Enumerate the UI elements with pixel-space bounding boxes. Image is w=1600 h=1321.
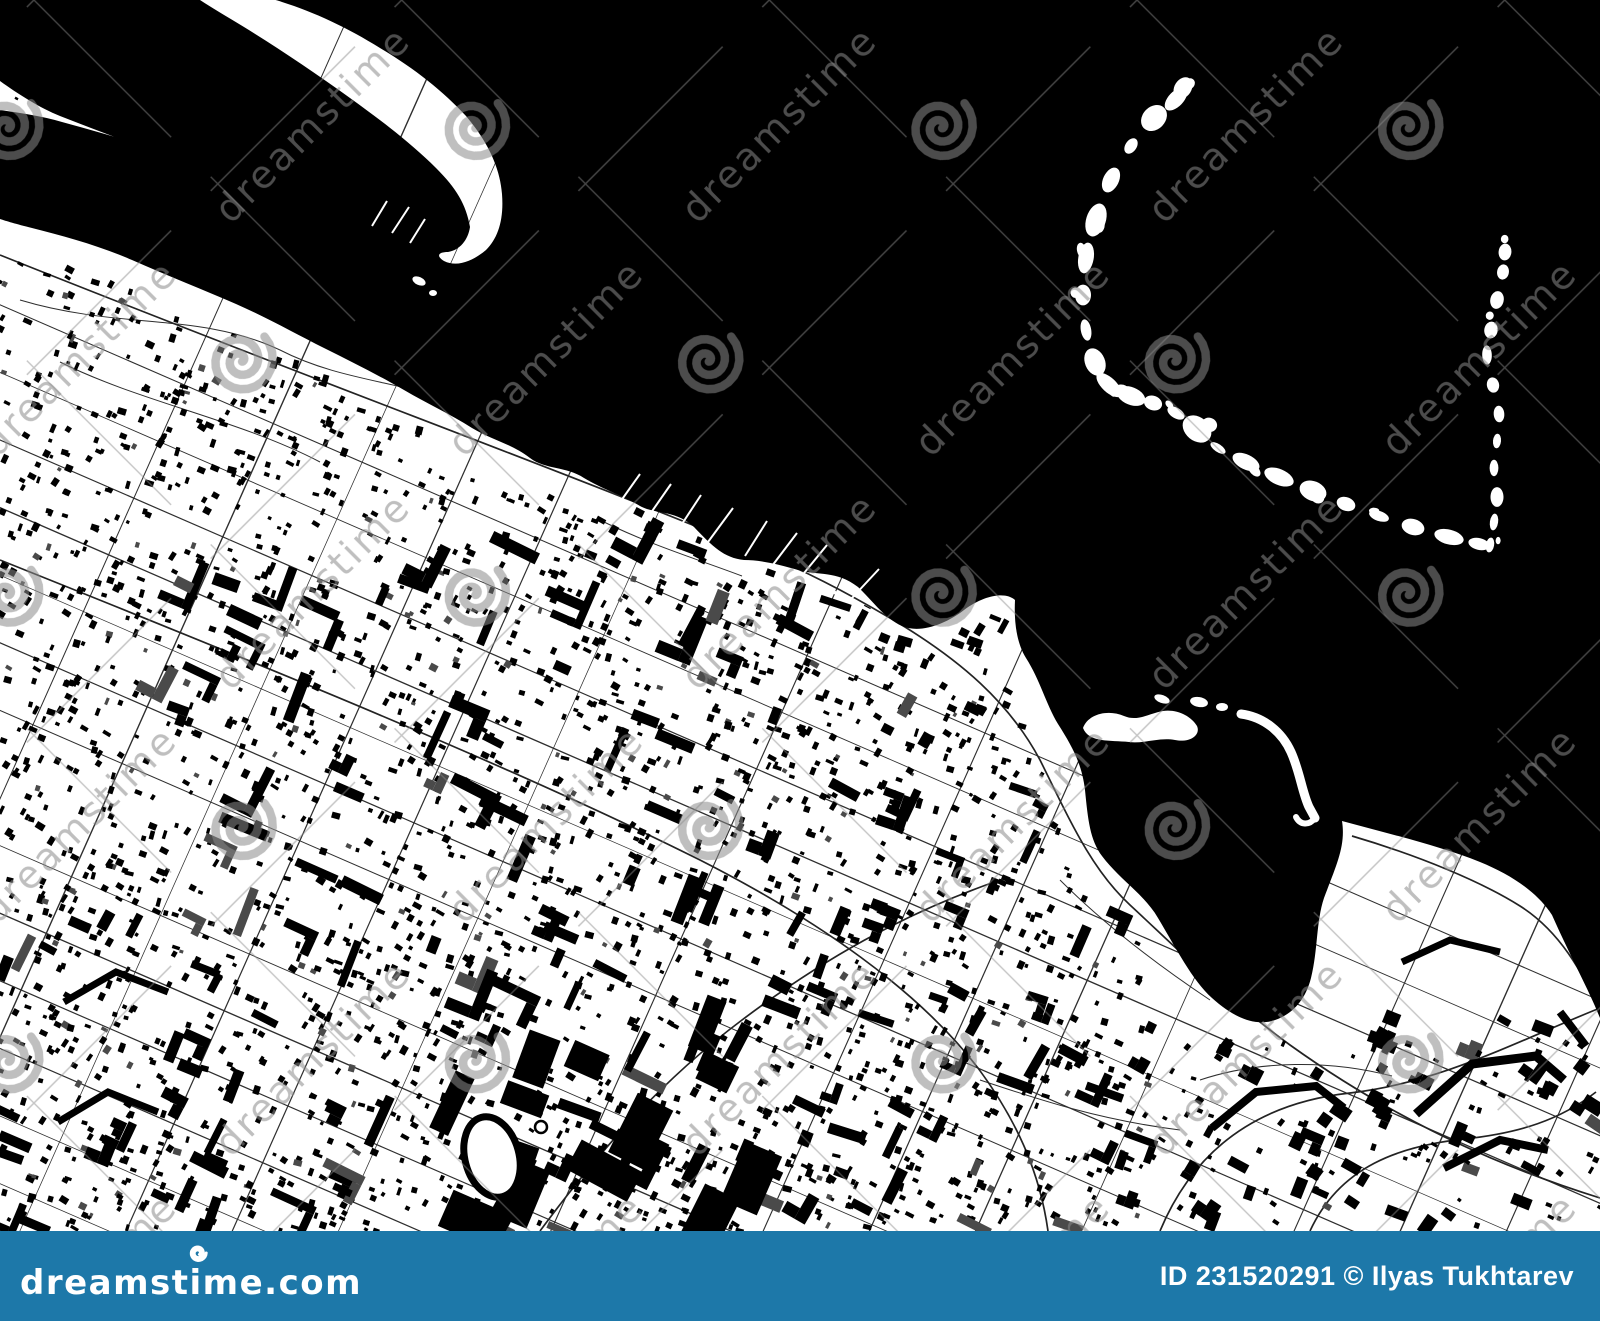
brand-spiral-icon: [191, 1247, 206, 1261]
city-map-svg: dreamstime: [0, 0, 1600, 1231]
brand-wordmark: dreamstime.com: [20, 1263, 358, 1303]
image-credit: ID 231520291 © Ilyas Tukhtarev: [1160, 1261, 1574, 1292]
watermark-lines-overlay: [0, 0, 1600, 1231]
stock-image-page: dreamstime dreamstime.com ID 231520291 ©: [0, 0, 1600, 1321]
footer-bar: dreamstime.com ID 231520291 © Ilyas Tukh…: [0, 1231, 1600, 1321]
dreamstime-logo: dreamstime.com: [18, 1236, 358, 1316]
city-map: dreamstime: [0, 0, 1600, 1231]
